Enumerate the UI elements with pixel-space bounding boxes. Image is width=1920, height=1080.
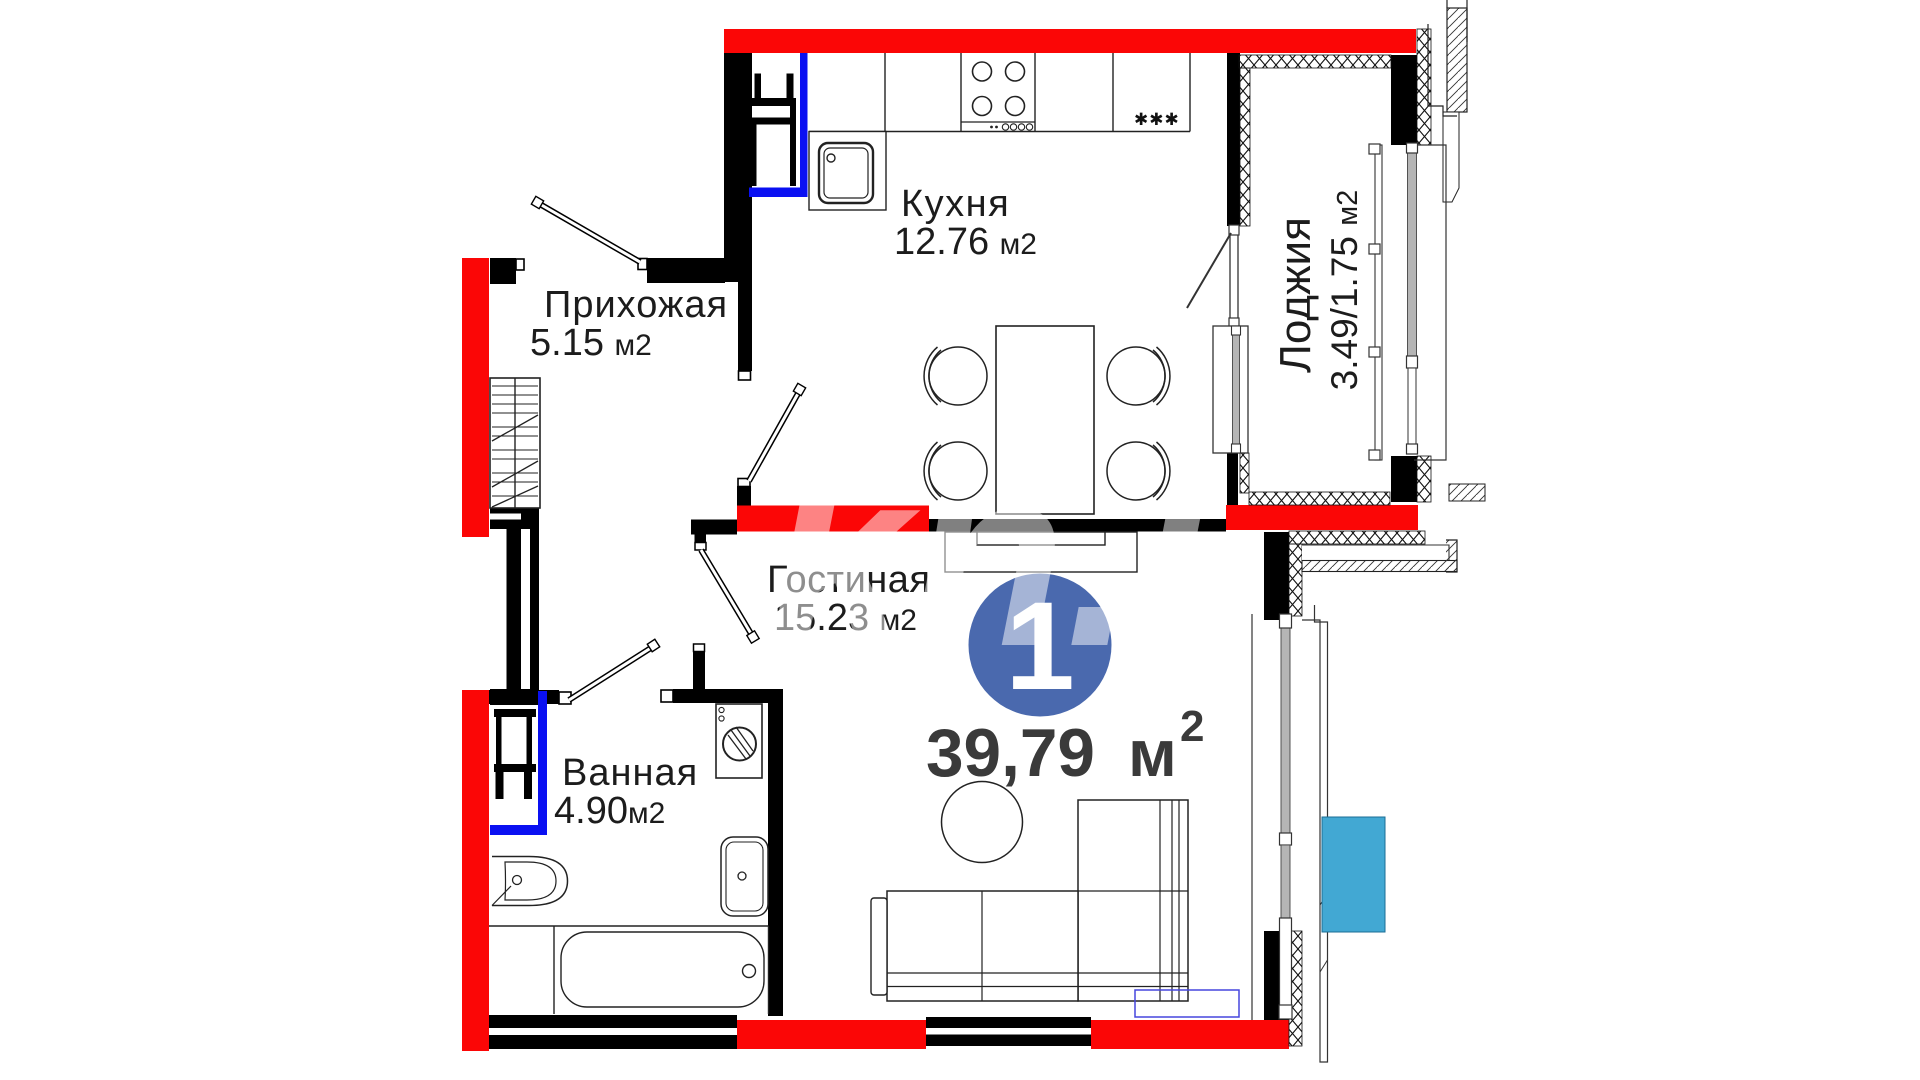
svg-text:5.15 м2: 5.15 м2 (530, 322, 652, 364)
svg-text:4.90м2: 4.90м2 (554, 790, 665, 832)
svg-text:✱✱✱: ✱✱✱ (1134, 110, 1180, 129)
svg-text:39,79: 39,79 (926, 716, 1095, 791)
svg-text:м: м (1128, 716, 1177, 790)
svg-text:Кухня: Кухня (901, 183, 1010, 225)
svg-text:Ванная: Ванная (562, 752, 698, 794)
svg-text:12.76 м2: 12.76 м2 (894, 221, 1037, 263)
svg-text:Прихожая: Прихожая (544, 284, 728, 326)
svg-text:2: 2 (1180, 702, 1204, 751)
svg-text:Лоджия: Лоджия (1271, 217, 1320, 373)
